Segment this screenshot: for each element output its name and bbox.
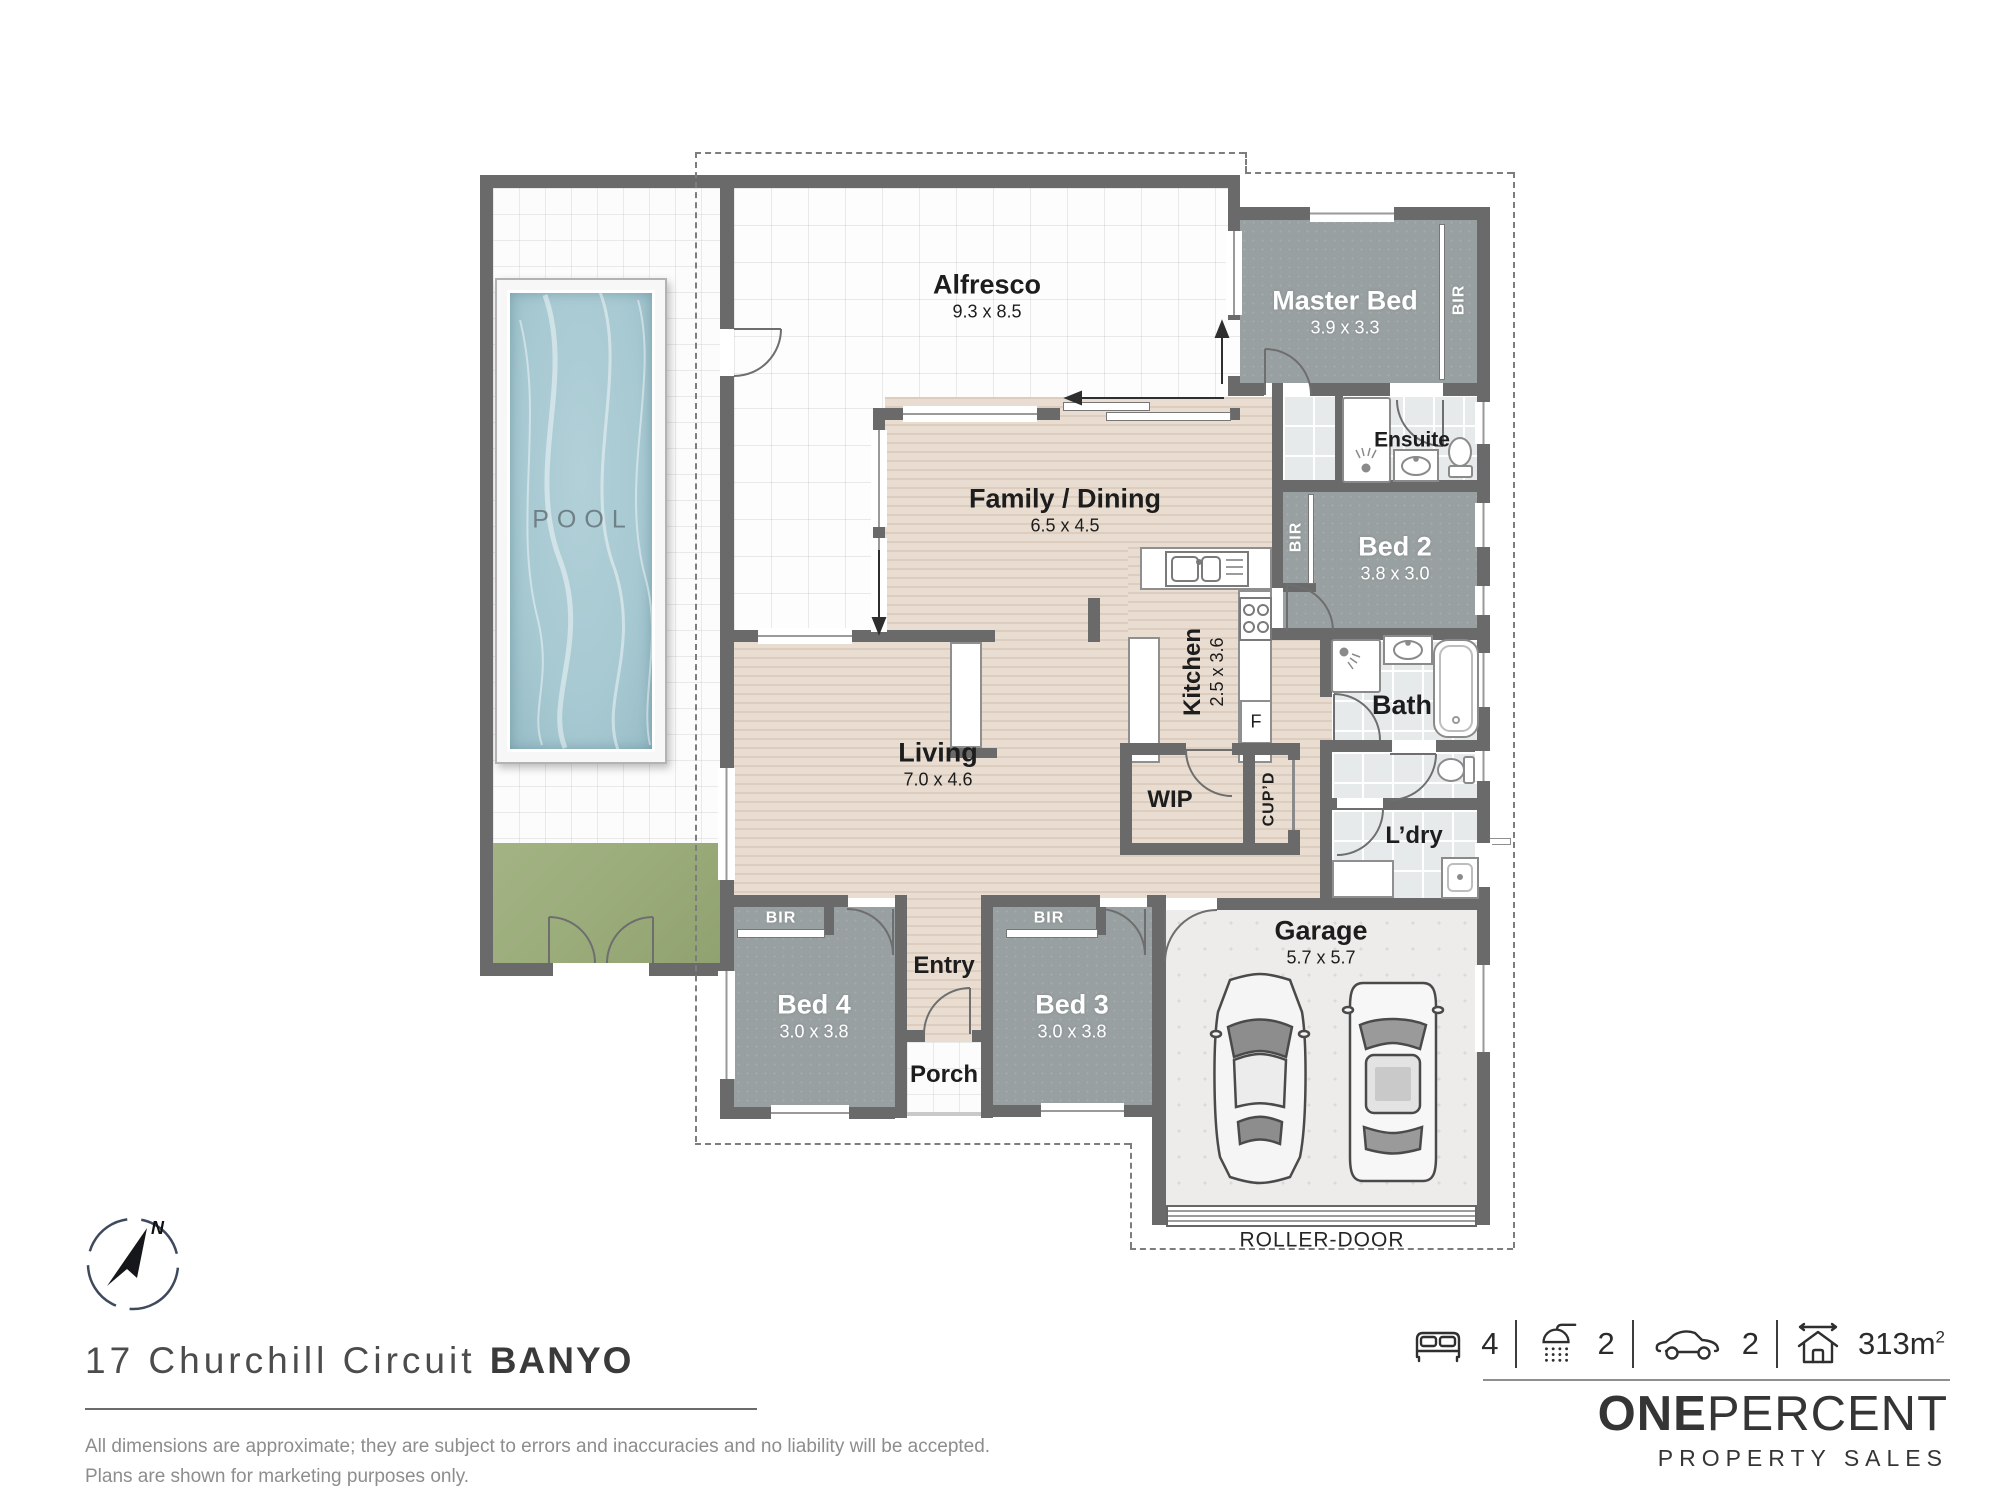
shower-icon [1534, 1321, 1580, 1367]
bir-label-bed4: BIR [766, 910, 797, 929]
wc-toilet [1438, 757, 1474, 783]
room-label-bed4: Bed 43.0 x 3.8 [777, 989, 851, 1042]
room-label-kitchen: Kitchen2.5 x 3.6 [1179, 628, 1229, 716]
room-label-bath: Bath [1372, 690, 1432, 722]
laundry-tub [1442, 858, 1478, 898]
brand-divider [1483, 1379, 1950, 1381]
room-label-bed3: Bed 33.0 x 3.8 [1035, 989, 1109, 1042]
car-count: 2 [1742, 1326, 1759, 1362]
car-top-view [1343, 983, 1443, 1181]
compass: N [83, 1212, 187, 1316]
room-label-living: Living7.0 x 4.6 [898, 737, 978, 790]
area-icon [1795, 1320, 1841, 1368]
bir-label-bed2: BIR [1288, 522, 1307, 553]
floorplan-page: Alfresco9.3 x 8.5 Family / Dining6.5 x 4… [0, 0, 2000, 1500]
cupboard-label: CUP’D [1261, 772, 1280, 827]
room-label-entry: Entry [913, 952, 974, 980]
divider [1515, 1320, 1517, 1368]
address-underline [85, 1408, 757, 1410]
kitchen-sink [1166, 552, 1248, 586]
compass-needle [107, 1228, 147, 1286]
room-label-family-dining: Family / Dining6.5 x 4.5 [969, 483, 1161, 536]
compass-north-label: N [151, 1218, 165, 1238]
room-label-master-bed: Master Bed3.9 x 3.3 [1272, 285, 1418, 338]
plan-symbols [0, 0, 2000, 1500]
feature-summary: 4 2 2 313m2 [1412, 1316, 1945, 1372]
bed-count: 4 [1481, 1326, 1498, 1362]
divider [1632, 1320, 1634, 1368]
roller-door-label: ROLLER-DOOR [1239, 1229, 1404, 1254]
room-label-ensuite: Ensuite [1374, 429, 1450, 454]
divider [1776, 1320, 1778, 1368]
room-label-garage: Garage5.7 x 5.7 [1274, 915, 1367, 968]
ensuite-vanity [1394, 450, 1438, 481]
pool-label: POOL [532, 505, 633, 535]
bir-label-master: BIR [1451, 285, 1470, 316]
room-label-alfresco: Alfresco9.3 x 8.5 [933, 269, 1041, 322]
cooktop [1240, 598, 1271, 640]
bathtub [1434, 640, 1478, 737]
shower-count: 2 [1597, 1326, 1614, 1362]
room-label-wip: WIP [1147, 786, 1192, 814]
car-top-view [1211, 974, 1309, 1183]
ensuite-toilet [1449, 438, 1472, 477]
bath-vanity [1384, 636, 1432, 664]
property-address: 17 Churchill Circuit BANYO [85, 1340, 633, 1382]
room-label-laundry: L’dry [1385, 822, 1442, 850]
bath-shower [1332, 640, 1380, 692]
bed-icon [1412, 1323, 1464, 1365]
fridge-label: F [1251, 711, 1262, 732]
room-label-bed2: Bed 23.8 x 3.0 [1358, 531, 1432, 584]
car-icon [1651, 1324, 1725, 1364]
floor-area: 313m2 [1858, 1326, 1945, 1362]
room-label-porch: Porch [910, 1061, 978, 1089]
disclaimer: All dimensions are approximate; they are… [85, 1432, 990, 1492]
bir-label-bed3: BIR [1034, 910, 1065, 929]
brand-logo: ONEPERCENT PROPERTY SALES [1598, 1386, 1948, 1472]
